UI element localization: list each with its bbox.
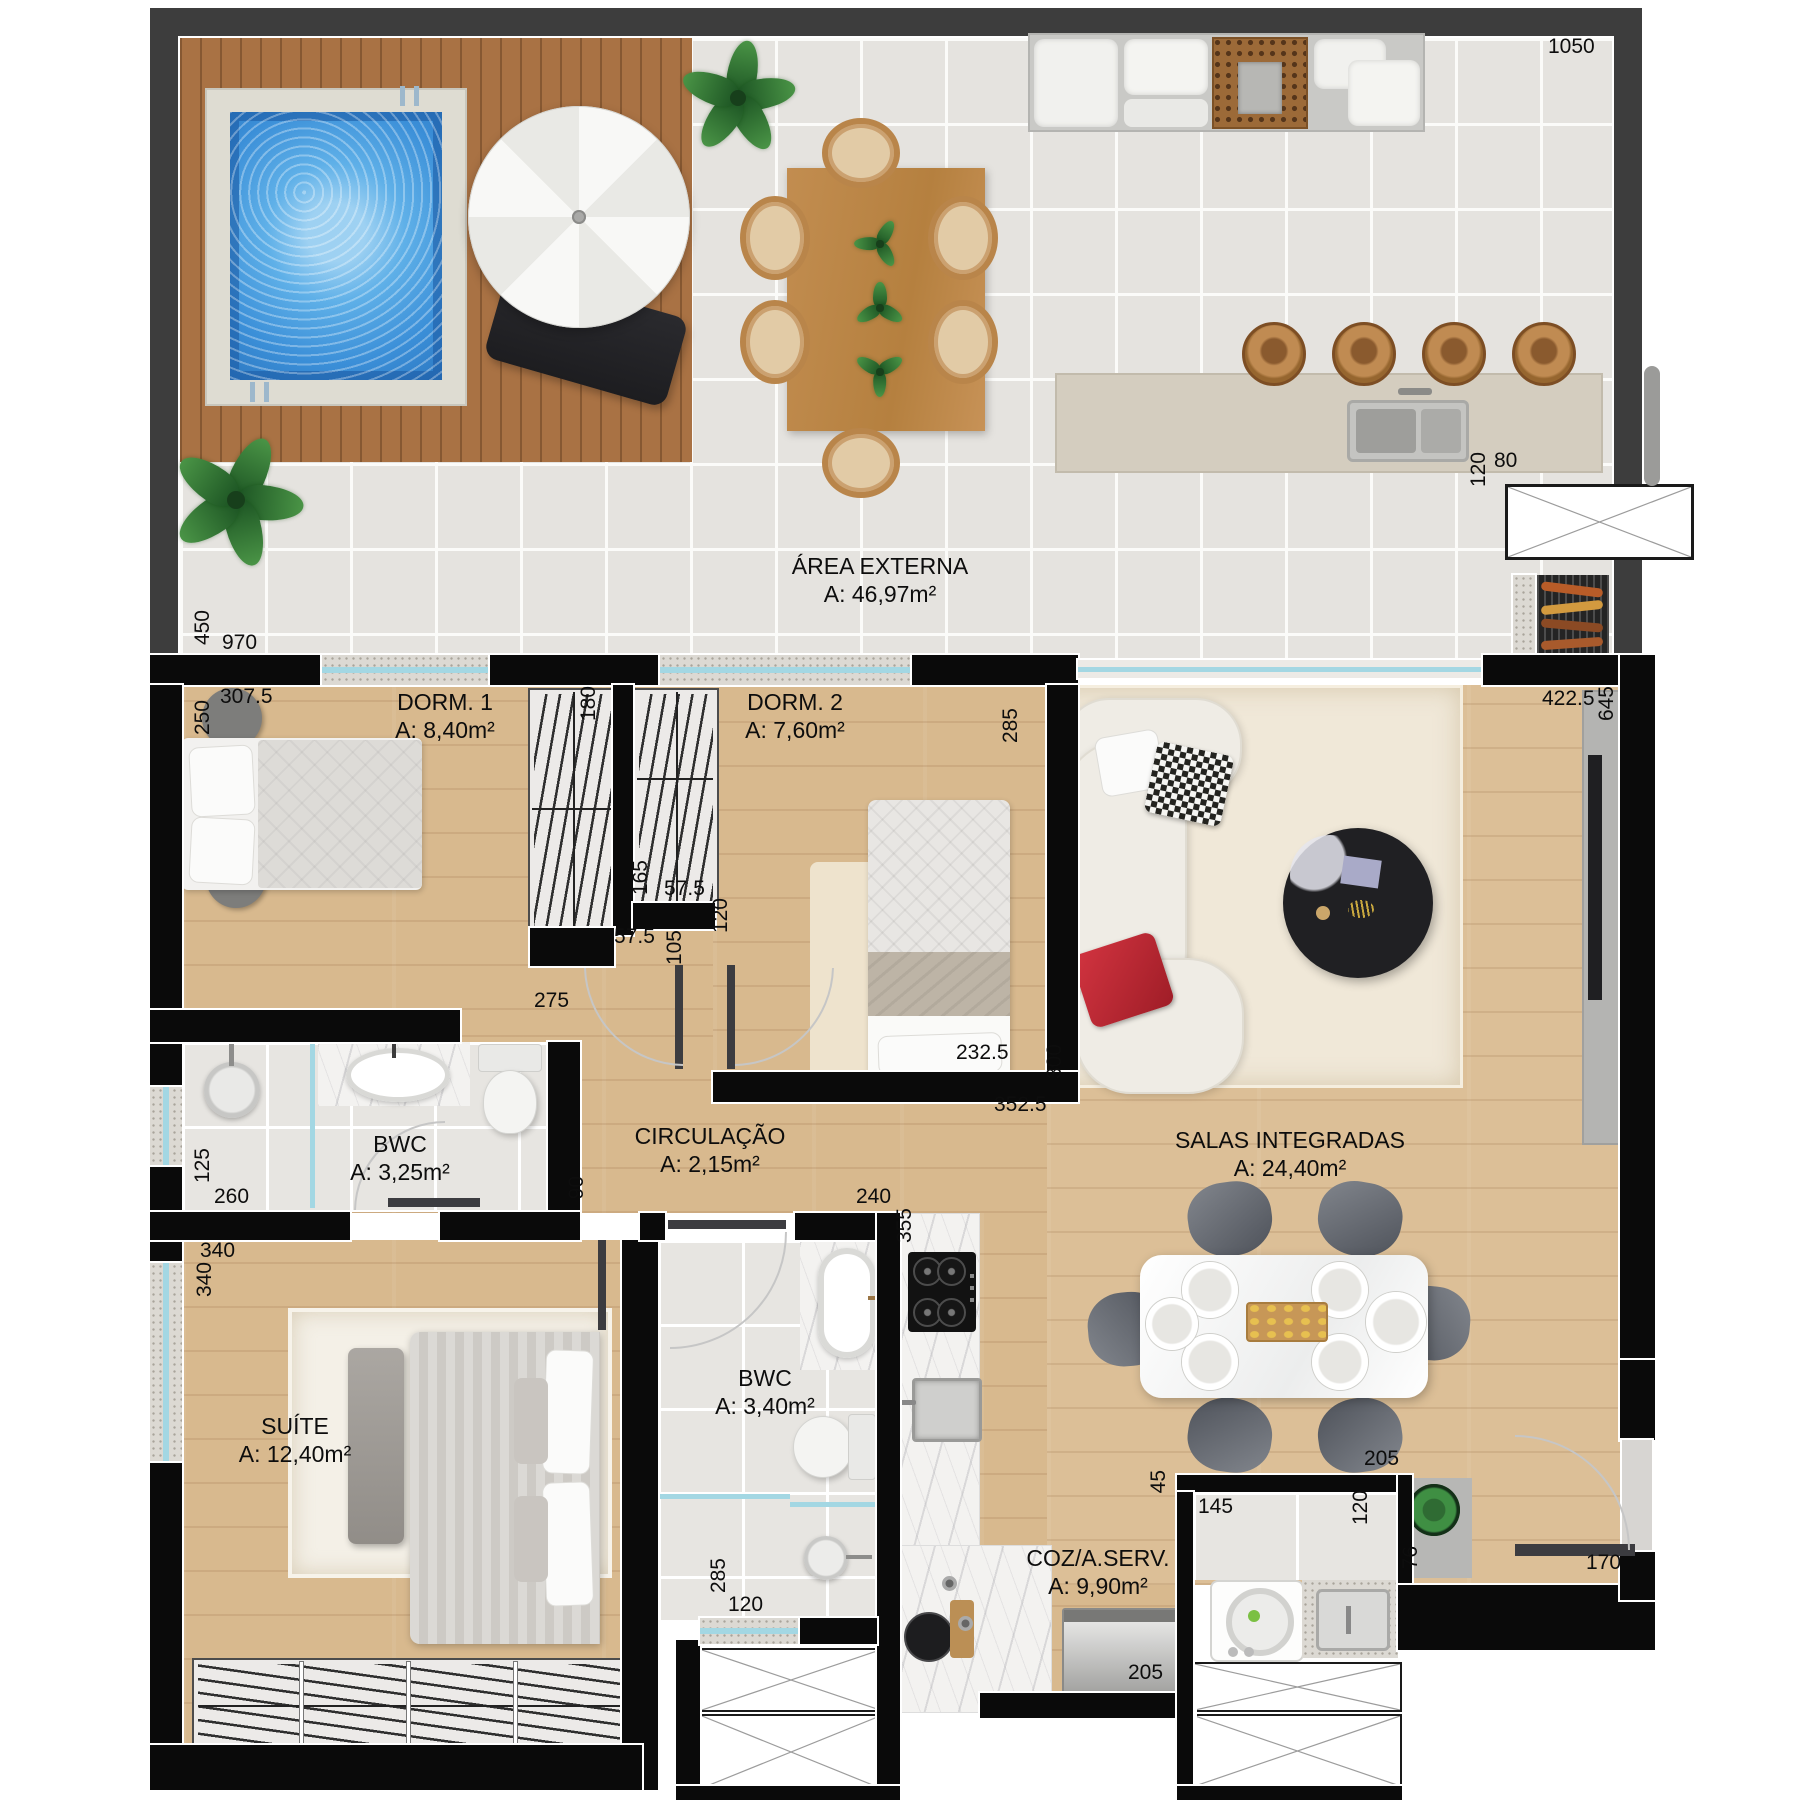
outdoor-sofa-cushion [1124, 99, 1208, 127]
faucet-dot-icon [942, 1576, 957, 1591]
dim-label: 232.5 [956, 1042, 1009, 1063]
bar-counter [1055, 373, 1603, 473]
dim-label: 352.5 [994, 1094, 1047, 1115]
room-name: SUÍTE [205, 1412, 385, 1440]
dim-label: 120 [1468, 452, 1489, 487]
wall [490, 655, 660, 685]
dim-label: 205 [1128, 1662, 1163, 1683]
toilet-bowl [793, 1416, 853, 1478]
room-name: COZ/A.SERV. [1008, 1544, 1188, 1572]
room-area: A: 2,15m² [615, 1150, 805, 1178]
dim-label: 120 [710, 898, 731, 933]
room-area: A: 24,40m² [1145, 1154, 1435, 1182]
wall [1177, 1786, 1402, 1800]
bar-sink-basin [1356, 409, 1416, 453]
umbrella-pole [572, 210, 586, 224]
bed-cushion [514, 1496, 548, 1582]
rattan-chair [740, 300, 810, 384]
room-label-circulacao: CIRCULAÇÃO A: 2,15m² [615, 1122, 805, 1178]
dim-label: 275 [534, 990, 569, 1011]
shower-glass [790, 1502, 878, 1507]
shaft-duct [700, 1648, 882, 1712]
plate [1182, 1334, 1238, 1390]
dorm2-rug [810, 862, 876, 1078]
suite-door-leaf [598, 1240, 606, 1330]
bar-stool [1422, 322, 1486, 386]
window [150, 1263, 182, 1463]
dorm2-door-leaf [727, 965, 735, 1069]
rattan-chair [740, 196, 810, 280]
dim-label: 422.5 [1542, 688, 1595, 709]
wall [676, 1640, 700, 1790]
terrace-wall-right [1612, 8, 1642, 658]
washing-machine [1210, 1580, 1304, 1662]
room-name: DORM. 2 [695, 688, 895, 716]
toilet-bowl [483, 1070, 537, 1134]
laundry-tank [1302, 1580, 1398, 1658]
dorm1-door-leaf [675, 965, 683, 1069]
dim-label: 90 [566, 1176, 587, 1199]
plate [1366, 1292, 1426, 1352]
dim-label: 285 [1000, 708, 1021, 743]
dim-label: 80 [1494, 450, 1517, 471]
dorm1-duvet [258, 740, 422, 888]
wall [912, 655, 1078, 685]
bar-sink-basin [1421, 409, 1461, 453]
bed-pillow [542, 1349, 594, 1475]
dim-label: 340 [200, 1240, 235, 1261]
room-label-salas: SALAS INTEGRADAS A: 24,40m² [1145, 1126, 1435, 1182]
plate [1312, 1334, 1368, 1390]
round-sink [204, 1062, 260, 1118]
pool-ladder-icon [250, 382, 255, 402]
wall [622, 1240, 658, 1790]
toilet-tank [848, 1414, 876, 1480]
room-label-dorm1: DORM. 1 A: 8,40m² [345, 688, 545, 744]
dim-label: 57.5 [614, 926, 655, 947]
pool-ladder-icon [264, 382, 269, 402]
round-sink [804, 1536, 848, 1580]
dishwasher [1062, 1608, 1178, 1700]
wall [1177, 1492, 1193, 1800]
room-label-area-externa: ÁREA EXTERNA A: 46,97m² [755, 552, 1005, 608]
wall [640, 1213, 665, 1240]
dim-label: 165 [630, 860, 651, 895]
bar-stool [1242, 322, 1306, 386]
room-name: SALAS INTEGRADAS [1145, 1126, 1435, 1154]
room-name: ÁREA EXTERNA [755, 552, 1005, 580]
wall [150, 1745, 642, 1790]
outdoor-sofa-cushion [1124, 39, 1208, 95]
dim-label: 355 [894, 1208, 915, 1243]
table-plant [858, 286, 902, 330]
dim-label: 170 [1586, 1552, 1621, 1573]
table-decor [1348, 900, 1374, 918]
dim-label: 180 [578, 686, 599, 721]
room-area: A: 7,60m² [695, 716, 895, 744]
floor-plan: ÁREA EXTERNA A: 46,97m² DORM. 1 A: 8,40m… [0, 0, 1800, 1800]
wall [877, 1213, 900, 1790]
dim-label: 250 [192, 700, 213, 735]
plate [1146, 1298, 1198, 1350]
dim-label: 240 [856, 1186, 891, 1207]
tub-faucet-icon [392, 1040, 396, 1058]
tv [1588, 755, 1602, 1000]
outdoor-sofa-cushion [1034, 39, 1118, 127]
bar-faucet-icon [1398, 388, 1432, 395]
room-label-coz: COZ/A.SERV. A: 9,90m² [1008, 1544, 1188, 1600]
wall [530, 928, 614, 966]
food-tray [1246, 1302, 1328, 1342]
room-area: A: 46,97m² [755, 580, 1005, 608]
pool-ladder-icon [414, 86, 419, 106]
wall [1620, 1360, 1655, 1440]
wall [1398, 1585, 1655, 1650]
room-label-bwc2: BWC A: 3,40m² [680, 1364, 850, 1420]
wall [150, 1212, 350, 1240]
bwc2-door-leaf [668, 1220, 786, 1229]
shower-glass [660, 1494, 790, 1499]
room-area: A: 3,25m² [310, 1158, 490, 1186]
table-plant [858, 222, 902, 266]
dim-label: 1050 [1548, 36, 1595, 57]
dim-label: 45 [1148, 1470, 1169, 1493]
dim-label: 307.5 [220, 686, 273, 707]
wall [800, 1618, 877, 1644]
bathtub [818, 1248, 876, 1358]
bbq-counter [1513, 575, 1535, 660]
dim-label: 76 [1400, 1546, 1421, 1569]
dim-label: 57.5 [664, 878, 705, 899]
dim-label: 205 [1364, 1448, 1399, 1469]
laundry-cabinet [1193, 1714, 1402, 1788]
entry-door-panel [1622, 1440, 1652, 1552]
slider-handle [1644, 366, 1660, 486]
suite-wardrobe [192, 1658, 626, 1752]
dim-label: 145 [1198, 1496, 1233, 1517]
faucet-dot-icon [958, 1616, 973, 1631]
wall [1620, 1552, 1655, 1600]
room-name: DORM. 1 [345, 688, 545, 716]
rattan-chair [822, 118, 900, 188]
wall [150, 1010, 460, 1042]
wall [150, 1463, 182, 1790]
window [322, 655, 490, 685]
wall [613, 685, 633, 935]
dim-label: 300 [1044, 1044, 1065, 1079]
window [700, 1618, 800, 1644]
room-name: BWC [310, 1130, 490, 1158]
room-area: A: 9,90m² [1008, 1572, 1188, 1600]
room-label-suite: SUÍTE A: 12,40m² [205, 1412, 385, 1468]
room-area: A: 12,40m² [205, 1440, 385, 1468]
terrace-wall-left [150, 8, 180, 658]
dim-label: 340 [194, 1262, 215, 1297]
pool-ladder-icon [400, 86, 405, 106]
bar-stool [1332, 322, 1396, 386]
bwc1-door-leaf [388, 1198, 480, 1207]
potted-plant [688, 48, 788, 148]
dim-label: 120 [1350, 1490, 1371, 1525]
wall [980, 1693, 1195, 1718]
room-label-bwc1: BWC A: 3,25m² [310, 1130, 490, 1186]
sink-stem [229, 1042, 234, 1066]
bed-pillow [188, 744, 256, 817]
pool-ripple [230, 112, 442, 380]
laundry-cabinet [1193, 1662, 1402, 1712]
bed-pillow [542, 1481, 594, 1607]
room-area: A: 3,40m² [680, 1392, 850, 1420]
cooktop [908, 1252, 976, 1332]
wall [1620, 655, 1655, 1360]
dorm2-blanket [868, 952, 1010, 1016]
rattan-chair [928, 196, 998, 280]
table-plant [858, 350, 902, 394]
bed-cushion [514, 1378, 548, 1464]
wall [440, 1212, 580, 1240]
fire-table-center [1238, 62, 1282, 114]
window [150, 1087, 182, 1167]
shaft-duct [700, 1714, 882, 1790]
dim-label: 260 [214, 1186, 249, 1207]
rattan-chair [928, 300, 998, 384]
wall [1047, 685, 1078, 1072]
kitchen-sink [912, 1378, 982, 1442]
outdoor-sofa-cushion [1348, 60, 1420, 126]
wall [150, 655, 322, 685]
room-label-dorm2: DORM. 2 A: 7,60m² [695, 688, 895, 744]
rattan-chair [822, 428, 900, 498]
dim-label: 125 [192, 1148, 213, 1183]
room-area: A: 8,40m² [345, 716, 545, 744]
sink-faucet-icon [846, 1555, 872, 1559]
dim-label: 450 [192, 610, 213, 645]
potted-plant [178, 442, 294, 558]
shaft-duct [1505, 484, 1694, 560]
wall [676, 1786, 900, 1800]
table-book [1340, 855, 1382, 888]
dim-label: 970 [222, 632, 257, 653]
dim-label: 285 [708, 1558, 729, 1593]
prep-bowl [904, 1612, 954, 1662]
sliding-door [1078, 660, 1483, 678]
window [660, 655, 912, 685]
room-name: BWC [680, 1364, 850, 1392]
dim-label: 645 [1596, 686, 1617, 721]
bar-stool [1512, 322, 1576, 386]
toilet-tank [478, 1044, 542, 1072]
shelf-plant [1408, 1484, 1460, 1536]
room-name: CIRCULAÇÃO [615, 1122, 805, 1150]
table-cup [1316, 906, 1330, 920]
dim-label: 105 [664, 930, 685, 965]
dim-label: 120 [728, 1594, 763, 1615]
bed-pillow [188, 816, 255, 885]
bathtub [346, 1048, 450, 1102]
